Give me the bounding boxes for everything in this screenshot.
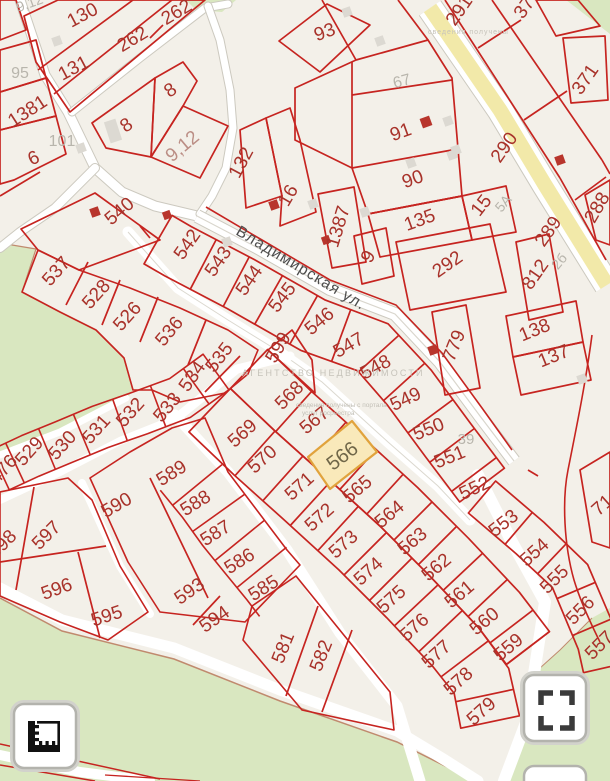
- svg-text:услуг росреестра: услуг росреестра: [302, 410, 355, 417]
- svg-text:101: 101: [49, 133, 76, 150]
- svg-text:АГЕНТСТВО НЕДВИЖИМОСТИ: АГЕНТСТВО НЕДВИЖИМОСТИ: [242, 368, 425, 378]
- svg-text:39: 39: [458, 431, 475, 448]
- svg-text:95: 95: [11, 65, 29, 82]
- svg-text:сведения получены с портала: сведения получены с портала: [296, 402, 387, 409]
- svg-text:сведения получены: сведения получены: [428, 29, 509, 36]
